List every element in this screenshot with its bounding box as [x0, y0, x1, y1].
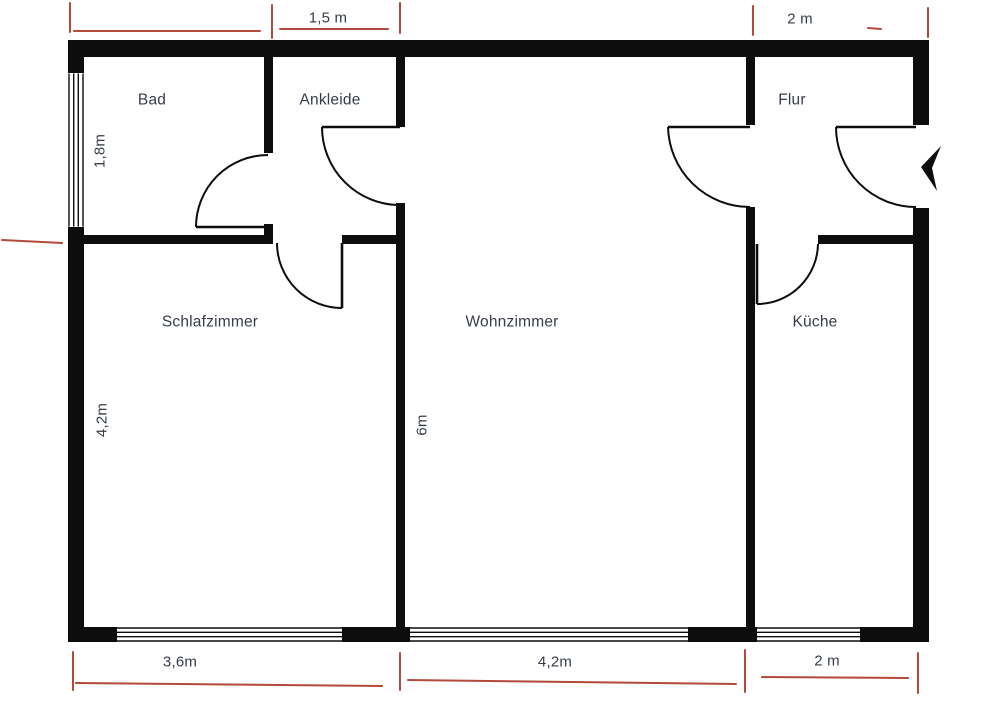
window-schlafzimmer-icon [117, 627, 342, 642]
windows [68, 73, 860, 642]
room-label-flur: Flur [778, 92, 806, 108]
door-flur-wohnzimmer-icon [668, 127, 750, 207]
window-kueche-icon [757, 627, 860, 642]
floor-plan: Bad Ankleide Flur Schlafzimmer Wohnzimme… [0, 0, 1000, 710]
dim-line-bottom-wohnzimmer [408, 680, 736, 684]
dim-dash-top-flur [868, 28, 881, 29]
dim-label-schlafzimmer-width: 3,6m [163, 655, 197, 670]
door-bad-icon [196, 155, 268, 227]
wall-bad-ankleide-stub [264, 224, 273, 235]
wall-wohnzimmer-flur-top [746, 57, 755, 125]
interior-walls [84, 57, 913, 627]
door-kueche-icon [757, 244, 818, 304]
wall-bad-ankleide [264, 57, 273, 153]
door-entrance-icon [836, 127, 916, 207]
dim-label-flur-width: 2 m [787, 12, 813, 27]
dim-label-schlafzimmer-height: 4,2m [95, 403, 110, 437]
door-ankleide-icon [322, 127, 400, 205]
exterior-walls [68, 40, 929, 642]
wall-ankleide-wohnzimmer-top [396, 57, 405, 127]
dim-label-wohnzimmer-height: 6m [415, 414, 430, 435]
wall-bad-schlafzimmer [84, 235, 273, 244]
dim-line-bottom-schlafzimmer [76, 683, 382, 686]
dim-line-bottom-kueche [762, 677, 908, 678]
wall-schlafzimmer-wohnzimmer [396, 203, 405, 627]
door-schlafzimmer-icon [277, 243, 342, 308]
room-label-wohnzimmer: Wohnzimmer [465, 314, 558, 330]
wall-flur-kueche [818, 235, 913, 244]
room-label-ankleide: Ankleide [299, 92, 360, 108]
dim-label-ankleide-width: 1,5 m [309, 11, 348, 26]
wall-wohnzimmer-kueche [746, 207, 755, 627]
dim-label-bad-height: 1,8m [93, 134, 108, 168]
window-wohnzimmer-icon [410, 627, 688, 642]
wall-top [68, 40, 929, 57]
dim-label-wohnzimmer-width: 4,2m [538, 655, 572, 670]
doors [196, 127, 916, 308]
window-bad-icon [68, 73, 84, 227]
room-label-bad: Bad [138, 92, 166, 108]
dim-line-left [2, 240, 62, 243]
room-label-schlafzimmer: Schlafzimmer [162, 314, 258, 330]
room-label-kueche: Küche [793, 314, 838, 330]
wall-ankleide-schlafzimmer [342, 235, 405, 244]
dim-label-kueche-width: 2 m [814, 654, 840, 669]
